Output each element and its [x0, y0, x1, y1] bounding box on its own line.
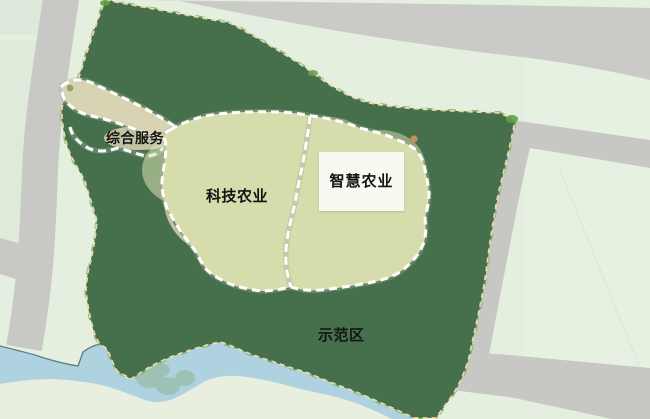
- zone-label-comprehensive-services: 综合服务: [106, 132, 164, 146]
- zone-label-smart-agriculture: 智慧农业: [329, 174, 393, 189]
- smart-agriculture-label-box: 智慧农业: [319, 152, 404, 211]
- zone-label-demo-area: 示范区: [318, 328, 365, 343]
- zone-label-tech-agriculture: 科技农业: [206, 189, 268, 204]
- site-plan-map: 综合服务 科技农业 智慧农业 示范区: [0, 0, 650, 419]
